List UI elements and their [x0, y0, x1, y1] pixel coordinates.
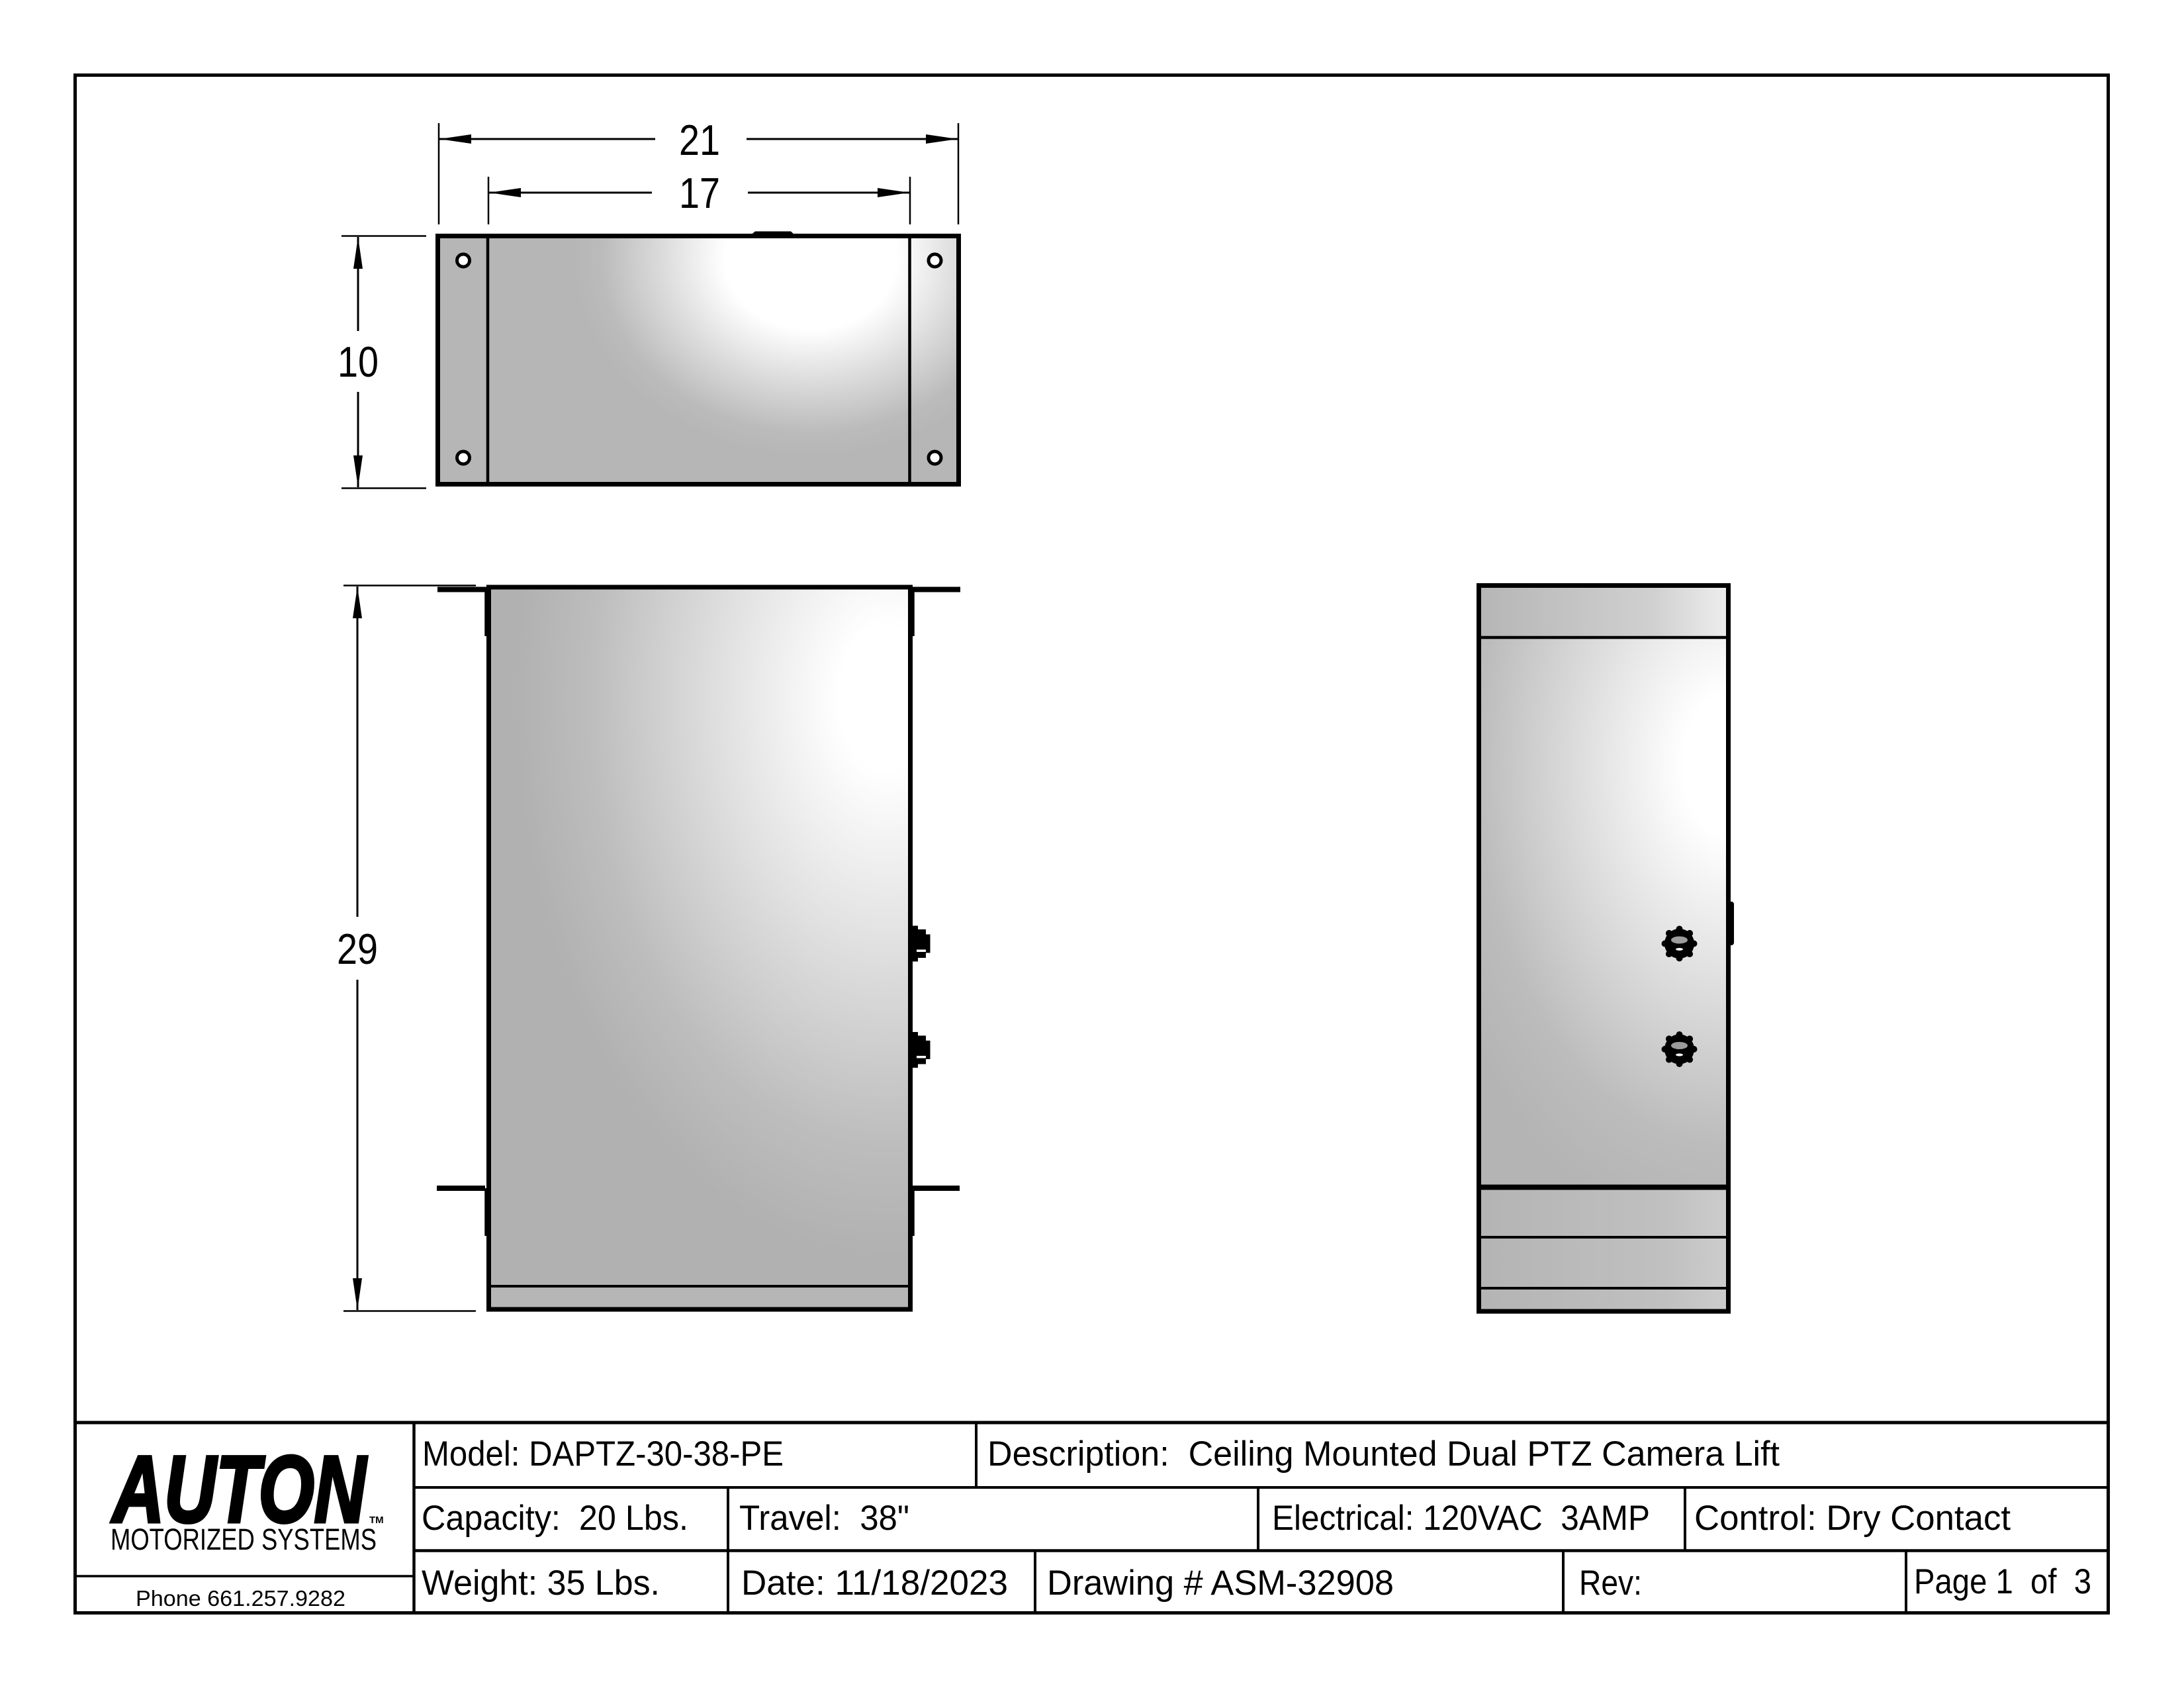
svg-text:Capacity: 20 Lbs.: Capacity: 20 Lbs. — [422, 1499, 688, 1538]
svg-text:Weight: 35 Lbs.: Weight: 35 Lbs. — [422, 1564, 660, 1603]
svg-text:Phone 661.257.9282: Phone 661.257.9282 — [136, 1586, 345, 1611]
svg-text:Drawing # ASM-32908: Drawing # ASM-32908 — [1047, 1564, 1394, 1603]
svg-text:Control: Dry Contact: Control: Dry Contact — [1694, 1499, 2011, 1538]
svg-text:Date: 11/18/2023: Date: 11/18/2023 — [741, 1564, 1008, 1603]
svg-text:Model: DAPTZ-30-38-PE: Model: DAPTZ-30-38-PE — [422, 1434, 784, 1474]
svg-text:Rev:: Rev: — [1579, 1564, 1642, 1603]
svg-text:Page 1 of 3: Page 1 of 3 — [1914, 1562, 2091, 1601]
svg-text:Electrical: 120VAC 3AMP: Electrical: 120VAC 3AMP — [1272, 1499, 1650, 1538]
svg-text:MOTORIZED SYSTEMS: MOTORIZED SYSTEMS — [111, 1523, 377, 1556]
svg-text:10: 10 — [338, 338, 379, 386]
svg-text:21: 21 — [679, 116, 720, 164]
svg-text:Description: Ceiling Mounted: Description: Ceiling Mounted Dual PTZ Ca… — [987, 1434, 1780, 1474]
svg-text:Travel: 38": Travel: 38" — [739, 1499, 909, 1538]
svg-text:17: 17 — [679, 169, 720, 217]
svg-text:29: 29 — [337, 925, 378, 973]
